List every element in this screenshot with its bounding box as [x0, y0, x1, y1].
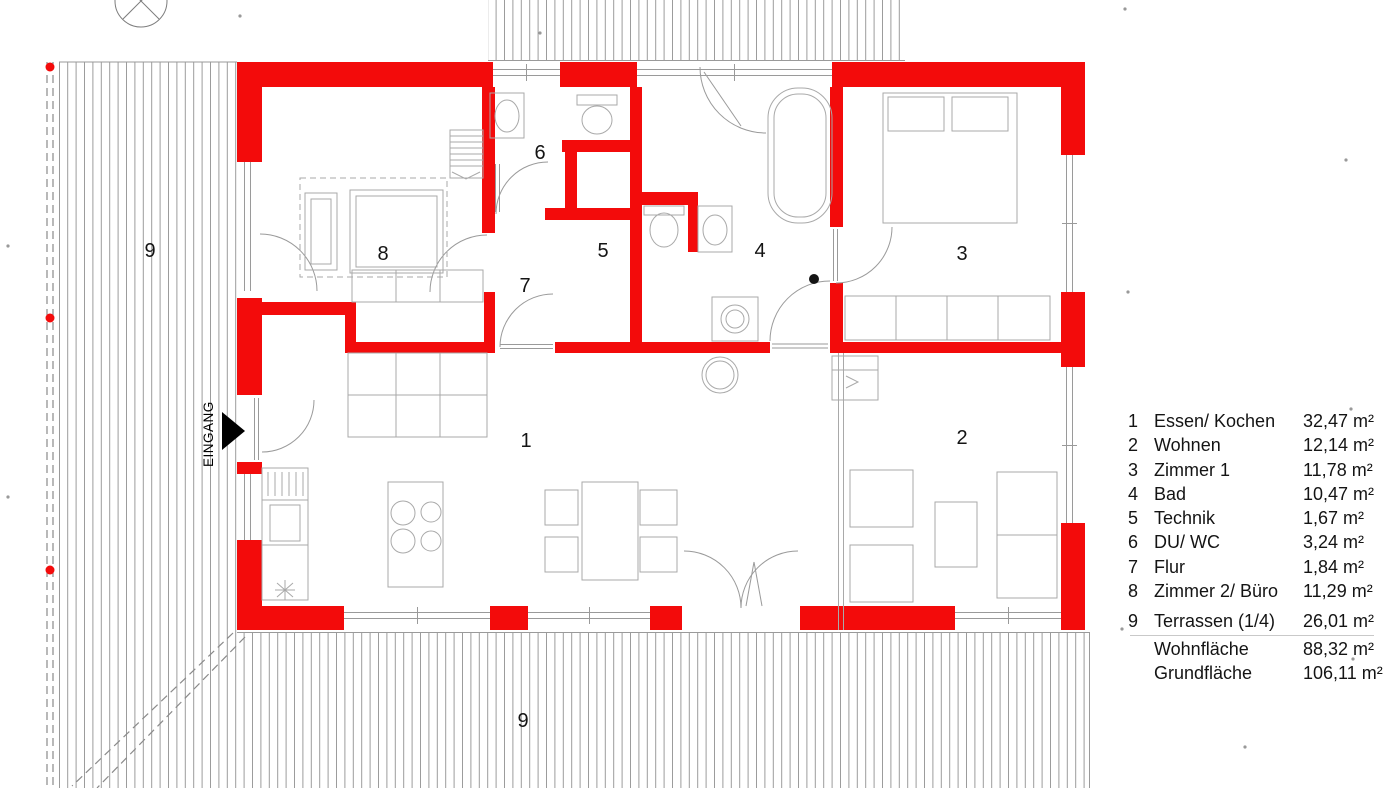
legend-room-number: 6 [1128, 530, 1154, 554]
fixtures-duwc [490, 93, 617, 138]
legend-room-area: 26,01 m² [1303, 609, 1396, 633]
legend-total-spacer [1128, 637, 1154, 661]
legend-room-name: Zimmer 2/ Büro [1154, 579, 1303, 603]
survey-circle-icon [115, 0, 167, 27]
legend-room-name: Terrassen (1/4) [1154, 609, 1303, 633]
furniture-room3 [845, 93, 1050, 340]
legend-total-spacer [1128, 661, 1154, 685]
legend-rows: 1Essen/ Kochen32,47 m²2Wohnen12,14 m²3Zi… [1128, 409, 1396, 634]
furniture-dining [545, 482, 677, 580]
legend-room-number: 2 [1128, 433, 1154, 457]
terrace-bottom [237, 632, 1090, 788]
legend-row: 8Zimmer 2/ Büro11,29 m² [1128, 579, 1396, 603]
legend-row: 7Flur1,84 m² [1128, 555, 1396, 579]
furniture-room2 [832, 353, 1057, 630]
legend-row: 5Technik1,67 m² [1128, 506, 1396, 530]
entrance-label: EINGANG [201, 401, 216, 467]
legend-room-area: 11,78 m² [1303, 458, 1396, 482]
legend-room-area: 1,84 m² [1303, 555, 1396, 579]
room-label-1: 1 [520, 430, 531, 452]
room-label-7: 7 [519, 275, 530, 297]
legend-room-number: 7 [1128, 555, 1154, 579]
legend-row: 2Wohnen12,14 m² [1128, 433, 1396, 457]
legend-room-name: Essen/ Kochen [1154, 409, 1303, 433]
legend-room-area: 1,67 m² [1303, 506, 1396, 530]
legend-room-area: 11,29 m² [1303, 579, 1396, 603]
legend-row: 4Bad10,47 m² [1128, 482, 1396, 506]
legend-row: 3Zimmer 111,78 m² [1128, 458, 1396, 482]
room-label-6: 6 [534, 142, 545, 164]
legend-room-area: 10,47 m² [1303, 482, 1396, 506]
room-label-4: 4 [754, 240, 765, 262]
legend-row: 1Essen/ Kochen32,47 m² [1128, 409, 1396, 433]
legend-room-name: Wohnen [1154, 433, 1303, 457]
furniture-kitchen [262, 468, 443, 600]
floor-plan-page: EINGANG 1234567899 1Essen/ Kochen32,47 m… [0, 0, 1400, 788]
room-label-9: 9 [517, 710, 528, 732]
legend-total-area: 88,32 m² [1303, 637, 1396, 661]
legend-room-area: 32,47 m² [1303, 409, 1396, 433]
legend-room-number: 4 [1128, 482, 1154, 506]
area-legend: 1Essen/ Kochen32,47 m²2Wohnen12,14 m²3Zi… [1128, 409, 1396, 685]
legend-total-row: Grundfläche106,11 m² [1128, 661, 1396, 685]
legend-total-row: Wohnfläche88,32 m² [1128, 637, 1396, 661]
terrace-top [488, 0, 905, 61]
walls [237, 62, 1085, 630]
legend-separator [1130, 635, 1374, 636]
legend-room-name: Bad [1154, 482, 1303, 506]
furniture-room8 [300, 130, 483, 302]
legend-room-area: 12,14 m² [1303, 433, 1396, 457]
reference-point-dot [809, 274, 819, 284]
legend-totals: Wohnfläche88,32 m²Grundfläche106,11 m² [1128, 637, 1396, 686]
room-label-2: 2 [956, 427, 967, 449]
room-label-3: 3 [956, 243, 967, 265]
furniture-hall-closet [348, 353, 487, 437]
room-label-8: 8 [377, 243, 388, 265]
legend-room-number: 9 [1128, 609, 1154, 633]
room-label-9: 9 [144, 240, 155, 262]
legend-row: 9Terrassen (1/4)26,01 m² [1128, 609, 1396, 633]
fridge-symbol-icon [275, 580, 295, 600]
legend-room-area: 3,24 m² [1303, 530, 1396, 554]
legend-row: 6DU/ WC3,24 m² [1128, 530, 1396, 554]
legend-room-name: Technik [1154, 506, 1303, 530]
legend-total-name: Wohnfläche [1154, 637, 1303, 661]
room-label-5: 5 [597, 240, 608, 262]
legend-room-name: DU/ WC [1154, 530, 1303, 554]
legend-total-name: Grundfläche [1154, 661, 1303, 685]
legend-room-name: Zimmer 1 [1154, 458, 1303, 482]
legend-room-number: 8 [1128, 579, 1154, 603]
legend-total-area: 106,11 m² [1303, 661, 1396, 685]
legend-room-number: 5 [1128, 506, 1154, 530]
legend-room-name: Flur [1154, 555, 1303, 579]
legend-room-number: 3 [1128, 458, 1154, 482]
legend-room-number: 1 [1128, 409, 1154, 433]
